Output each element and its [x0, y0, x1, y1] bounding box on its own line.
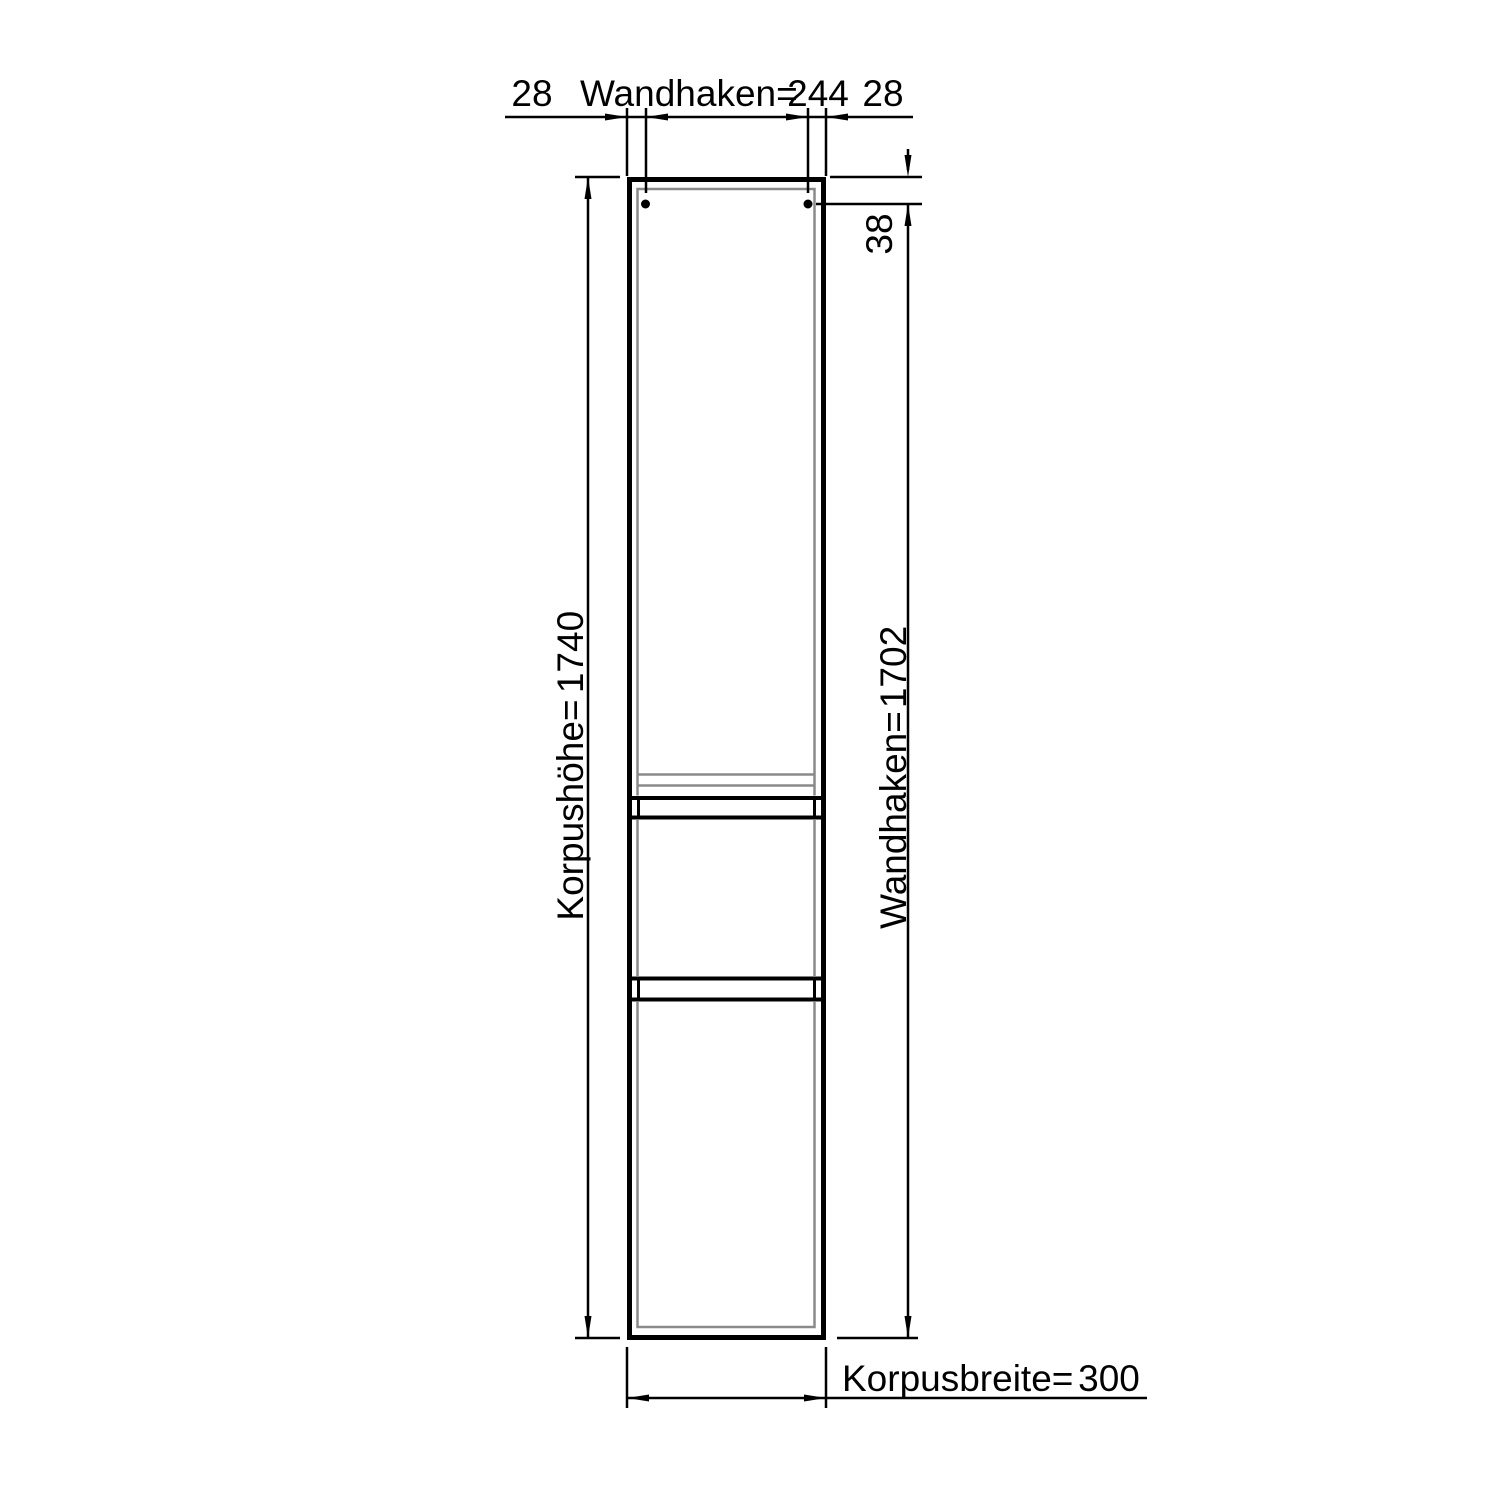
hook-offset-value: 38	[859, 213, 900, 254]
cabinet-outer-frame	[630, 180, 824, 1338]
arrow-right-width	[804, 1395, 826, 1402]
arrow-up-height-top	[585, 177, 592, 199]
top-right-offset-value: 28	[862, 73, 903, 114]
body-width-value: 300	[1078, 1358, 1140, 1399]
technical-drawing: 28 Wandhaken= 244 28 1740 Korpushöhe= 38…	[0, 0, 1500, 1500]
body-width-dimension: Korpusbreite= 300	[627, 1347, 1147, 1408]
hook-height-dimension: 1702 Wandhaken=	[837, 204, 918, 1338]
hook-height-value: 1702	[873, 626, 914, 708]
arrow-up-at-hook-level	[905, 204, 912, 226]
arrow-down-hook-height-bottom	[905, 1316, 912, 1338]
arrow-right-at-left-edge	[605, 114, 627, 121]
arrow-down-height-bottom	[585, 1316, 592, 1338]
wall-hook-left-dot	[641, 200, 650, 209]
upper-rail	[627, 796, 826, 821]
body-height-dimension: 1740 Korpushöhe=	[550, 177, 620, 1338]
body-width-label: Korpusbreite=	[842, 1358, 1073, 1399]
drawing-svg: 28 Wandhaken= 244 28 1740 Korpushöhe= 38…	[0, 0, 1500, 1500]
arrow-left-at-right-edge	[826, 114, 848, 121]
top-left-offset-value: 28	[511, 73, 552, 114]
arrow-right-at-right-hook	[786, 114, 808, 121]
top-dimension-label: Wandhaken=	[580, 73, 798, 114]
arrow-left-width	[627, 1395, 649, 1402]
cabinet-body	[627, 180, 826, 1338]
top-dimension: 28 Wandhaken= 244 28	[505, 73, 913, 193]
top-dimension-value: 244	[787, 73, 849, 114]
hook-offset-dimension: 38	[816, 149, 922, 255]
body-height-value: 1740	[550, 611, 591, 693]
arrow-down-at-cabinet-top	[905, 155, 912, 177]
wall-hook-right-dot	[804, 200, 813, 209]
arrow-left-at-left-hook	[646, 114, 668, 121]
cabinet-inner-panel-edge	[638, 189, 815, 1327]
hook-height-label: Wandhaken=	[873, 711, 914, 929]
body-height-label: Korpushöhe=	[550, 699, 591, 920]
lower-rail	[627, 976, 826, 1002]
